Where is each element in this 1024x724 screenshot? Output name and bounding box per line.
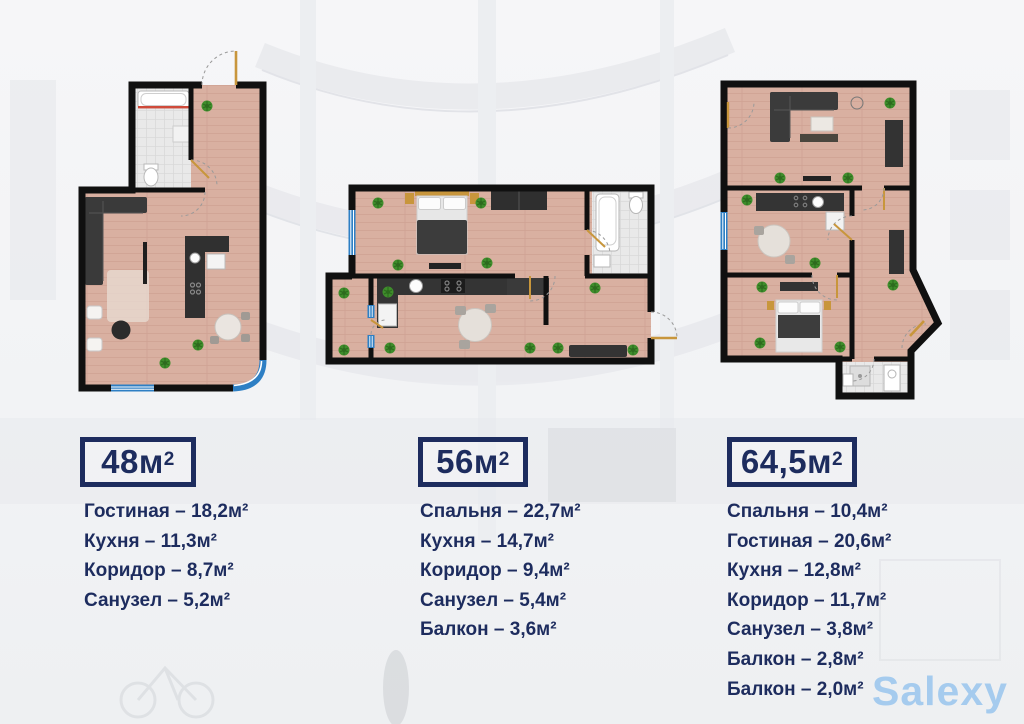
room-area-line: Гостиная – 20,6м² bbox=[727, 527, 891, 557]
wardrobe bbox=[889, 230, 904, 274]
room-area-line: Санузел – 5,4м² bbox=[420, 586, 581, 616]
dining-table bbox=[215, 314, 241, 340]
fridge bbox=[826, 212, 844, 230]
room-area-line: Кухня – 12,8м² bbox=[727, 556, 891, 586]
nightstand bbox=[405, 193, 414, 204]
fridge bbox=[207, 254, 225, 269]
room-area-line: Гостиная – 18,2м² bbox=[84, 497, 248, 527]
cabinet bbox=[507, 278, 549, 295]
toilet bbox=[144, 168, 158, 186]
salexy-logo: Salexy bbox=[872, 668, 1008, 715]
stove bbox=[441, 279, 465, 293]
area-badge-sup: 2 bbox=[832, 449, 843, 471]
area-badge-text: 56м bbox=[436, 443, 499, 481]
bedroom-wardrobe bbox=[780, 282, 818, 291]
area-badge-64: 64,5м2 bbox=[727, 437, 857, 487]
room-area-line: Балкон – 2,0м² bbox=[727, 675, 891, 705]
area-badge-sup: 2 bbox=[164, 449, 175, 471]
armchair bbox=[87, 306, 102, 319]
room-list-48: Гостиная – 18,2м² Кухня – 11,3м² Коридор… bbox=[84, 497, 248, 615]
window bbox=[111, 385, 154, 392]
room-area-line: Коридор – 9,4м² bbox=[420, 556, 581, 586]
tv-console bbox=[429, 263, 461, 269]
room-area-line: Спальня – 10,4м² bbox=[727, 497, 891, 527]
windows bbox=[721, 212, 728, 250]
nightstand bbox=[767, 301, 774, 310]
coffee-table bbox=[112, 321, 131, 340]
kitchen-sink bbox=[813, 197, 824, 208]
dishwasher bbox=[379, 304, 397, 326]
kitchen-sink bbox=[190, 253, 200, 263]
armchair bbox=[87, 338, 102, 351]
room-area-line: Санузел – 3,8м² bbox=[727, 615, 891, 645]
kitchen-counter bbox=[185, 236, 205, 318]
coffee-table bbox=[811, 117, 833, 131]
washbasin bbox=[594, 255, 610, 267]
washbasin bbox=[843, 374, 853, 386]
room-area-line: Коридор – 8,7м² bbox=[84, 556, 248, 586]
window bbox=[721, 212, 728, 250]
room-area-line: Балкон – 2,8м² bbox=[727, 645, 891, 675]
area-badge-56: 56м2 bbox=[418, 437, 528, 487]
washbasin bbox=[173, 126, 189, 142]
balcony-window bbox=[368, 305, 375, 318]
area-badge-text: 64,5м bbox=[741, 443, 832, 481]
room-area-line: Кухня – 14,7м² bbox=[420, 527, 581, 557]
room-area-line: Кухня – 11,3м² bbox=[84, 527, 248, 557]
bench bbox=[569, 345, 627, 357]
toilet bbox=[630, 197, 643, 214]
bathtub-towel bbox=[138, 106, 189, 108]
flyer-page: 48м2 56м2 64,5м2 Гостиная – 18,2м² Кухня… bbox=[0, 0, 1024, 724]
rug bbox=[107, 270, 149, 322]
wardrobe bbox=[885, 120, 903, 167]
room-area-line: Коридор – 11,7м² bbox=[727, 586, 891, 616]
tv bbox=[143, 242, 147, 284]
area-badge-sup: 2 bbox=[499, 449, 510, 471]
nightstand bbox=[824, 301, 831, 310]
area-badge-text: 48м bbox=[101, 443, 164, 481]
balcony-window bbox=[368, 335, 375, 348]
floor-plan-64 bbox=[712, 78, 947, 423]
room-area-line: Балкон – 3,6м² bbox=[420, 615, 581, 645]
room-list-56: Спальня – 22,7м² Кухня – 14,7м² Коридор … bbox=[420, 497, 581, 645]
floor-plan-48 bbox=[57, 30, 287, 422]
tv bbox=[803, 176, 831, 181]
bed-headboard bbox=[415, 191, 469, 196]
kitchen-sink bbox=[410, 280, 423, 293]
area-badge-48: 48м2 bbox=[80, 437, 196, 487]
window bbox=[349, 210, 356, 255]
kitchen-counter bbox=[756, 193, 844, 211]
room-area-line: Спальня – 22,7м² bbox=[420, 497, 581, 527]
room-area-line: Санузел – 5,2м² bbox=[84, 586, 248, 616]
room-list-64: Спальня – 10,4м² Гостиная – 20,6м² Кухня… bbox=[727, 497, 891, 704]
side-table bbox=[800, 134, 838, 142]
floor-plan-56 bbox=[315, 175, 695, 390]
